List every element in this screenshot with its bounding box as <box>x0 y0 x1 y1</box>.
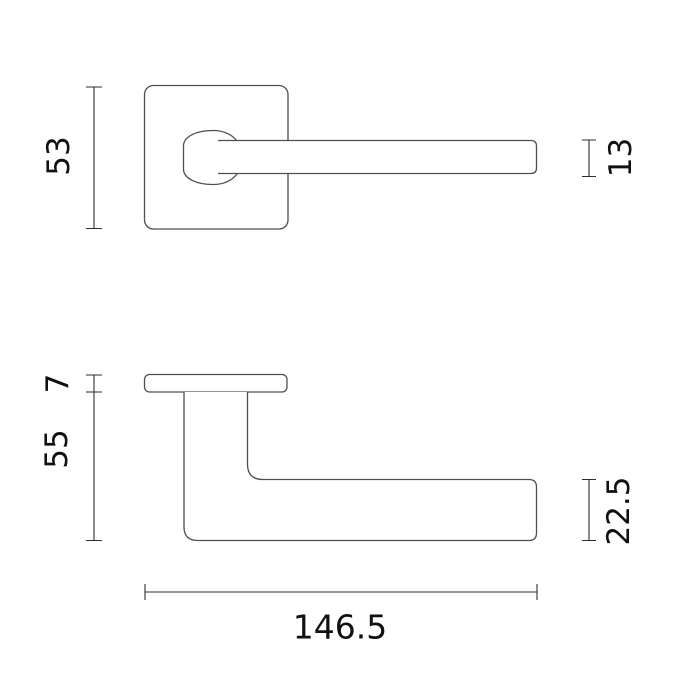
dim-rosette-height-label: 53 <box>41 136 77 175</box>
dim-projection-label: 55 <box>39 429 75 468</box>
dim-grip-height-line <box>582 480 596 541</box>
dim-overall-length: 146.5 <box>145 584 537 646</box>
side-view: 7 55 22.5 146.5 <box>39 374 637 647</box>
dim-lever-thickness: 13 <box>582 138 639 177</box>
door-handle-drawing: 53 13 7 55 22.5 <box>0 0 700 700</box>
side-handle-profile-outline <box>184 392 537 541</box>
dim-overall-length-label: 146.5 <box>293 607 387 646</box>
front-view: 53 13 <box>41 86 639 230</box>
side-rosette-plate-outline <box>145 375 288 393</box>
dim-left-stack: 7 55 <box>39 374 102 541</box>
dim-lever-thickness-label: 13 <box>603 138 639 177</box>
dim-overall-length-line <box>145 584 537 600</box>
dim-rosette-height-line <box>86 87 102 229</box>
dim-grip-height: 22.5 <box>582 476 637 545</box>
technical-drawing-canvas: 53 13 7 55 22.5 <box>0 0 700 700</box>
dim-grip-height-label: 22.5 <box>601 476 637 545</box>
dim-rosette-height: 53 <box>41 87 102 229</box>
dim-left-stack-line <box>86 375 102 541</box>
dim-rosette-depth-label: 7 <box>40 374 76 394</box>
front-lever-outline <box>218 141 537 174</box>
dim-lever-thickness-line <box>582 140 596 177</box>
